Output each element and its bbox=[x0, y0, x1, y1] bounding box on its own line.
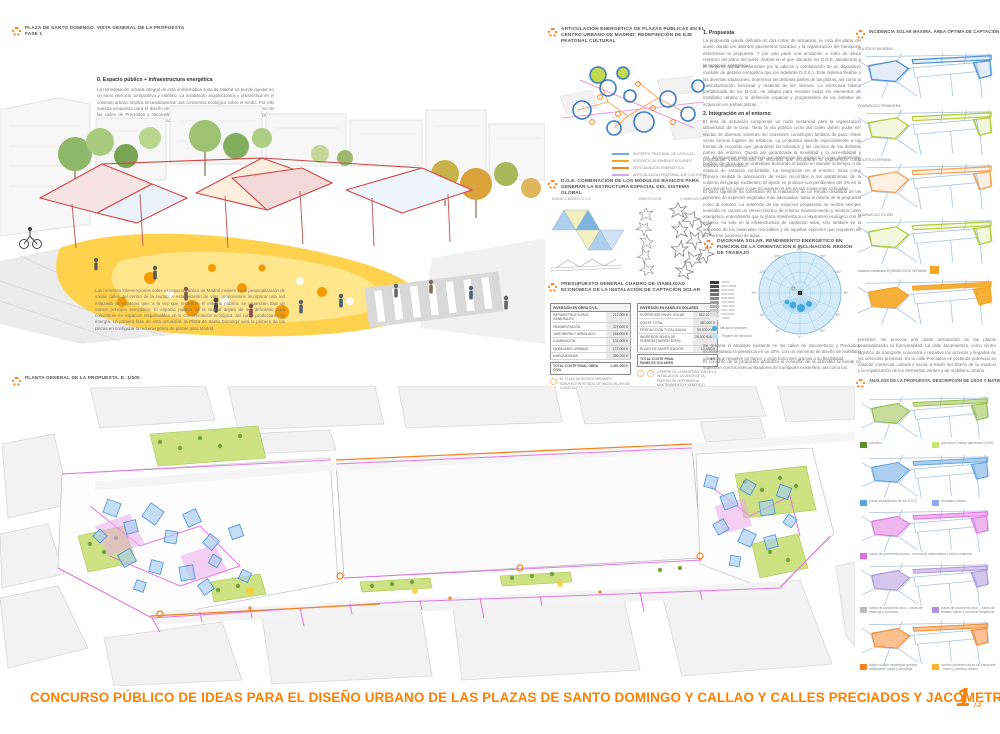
section-header-incidencia: INCIDENCIA SOLAR MÁXIMA. ÁREA ÓPTIMA DE … bbox=[856, 29, 996, 39]
analisis-legend-2: zonas implantación de los D.G.E. mobilia… bbox=[860, 499, 996, 506]
sun-icon bbox=[856, 30, 865, 39]
region-blob-icon bbox=[712, 334, 719, 339]
solar-polar-diagram: 180° 150° 120° 90° 60° 30° 0° -30° -60° … bbox=[748, 247, 852, 339]
integracion-p3: El paso siguiente ha consistido en la re… bbox=[703, 189, 861, 239]
section-header-presupuesto: PRESUPUESTO GENERAL CUADRO DE VIABILIDAD… bbox=[548, 282, 710, 294]
svg-text:-150°: -150° bbox=[774, 255, 782, 259]
sun-icon bbox=[12, 27, 21, 36]
svg-text:150°: 150° bbox=[819, 255, 826, 259]
sun-icon bbox=[548, 283, 557, 292]
svg-text:-90°: -90° bbox=[751, 291, 758, 295]
incidencia-map-invierno bbox=[858, 52, 996, 99]
svg-text:30°: 30° bbox=[820, 329, 826, 333]
incidencia-map-maxima bbox=[858, 277, 996, 327]
articulacion-legend: SOPORTE PEATONAL DE LA PLAZA SOPORTE DE … bbox=[612, 150, 707, 178]
incidencia-title: INCIDENCIA SOLAR MÁXIMA. ÁREA ÓPTIMA DE … bbox=[869, 29, 999, 35]
svg-text:180°: 180° bbox=[797, 247, 804, 251]
analisis-map-dge bbox=[858, 455, 996, 498]
svg-text:120°: 120° bbox=[835, 270, 842, 274]
solar-p2: El conjunto de la propuesta garantiza la… bbox=[703, 359, 861, 372]
section-header-articulacion: ARTICULACIÓN ENERGÉTICA DE PLAZAS PÚBLIC… bbox=[548, 27, 710, 46]
dge-col1-label: MÓDULO BÁSICO D.G.E bbox=[552, 197, 591, 201]
svg-text:-120°: -120° bbox=[758, 270, 766, 274]
network-diagram bbox=[552, 66, 712, 148]
table-header: INVERSIÓN EN PANELES SOLARES bbox=[637, 303, 718, 312]
sun-icon bbox=[12, 377, 21, 386]
sun-icon bbox=[856, 379, 865, 388]
master-plan bbox=[0, 386, 855, 686]
panel-dot-icon bbox=[712, 326, 717, 331]
propuesta-heading: 1. Propuesta bbox=[703, 30, 734, 36]
incidencia-map-primavera bbox=[858, 109, 996, 156]
map-label-primavera: EQUINOCCIO PRIMAVERA bbox=[858, 104, 901, 108]
legend-swatch bbox=[612, 160, 629, 162]
analisis-legend-5: tráfico rodado restringido garajes parti… bbox=[860, 663, 996, 672]
section-title: PLAZA DE SANTO DOMINGO. VISTA GENERAL DE… bbox=[25, 26, 184, 32]
svg-text:-30°: -30° bbox=[775, 329, 782, 333]
analisis-map-pavimento-duro bbox=[858, 563, 996, 606]
solar-scale-legend: 100% 95%-100% 90%-95% 85%-90% 80%-85% 75… bbox=[710, 280, 736, 320]
legend-swatch bbox=[612, 174, 629, 176]
presupuesto-title: PRESUPUESTO GENERAL CUADRO DE VIABILIDAD… bbox=[561, 282, 710, 294]
sun-icon bbox=[704, 240, 713, 249]
table-header: INVERSIÓN EN OBRA CIVIL bbox=[550, 303, 631, 312]
integracion-heading: 2. Integración en el entorno bbox=[703, 111, 771, 117]
section-header-planta: PLANTA GENERAL DE LA PROPUESTA. e: 1/500 bbox=[12, 376, 272, 386]
intro-heading: 0. Espacio público + Infraestructura ene… bbox=[97, 77, 277, 83]
analisis-map-trafico bbox=[858, 621, 996, 664]
orange-square-icon bbox=[930, 266, 939, 274]
svg-text:-60°: -60° bbox=[759, 313, 766, 317]
dge-col3-label: COMBINACIÓN bbox=[680, 197, 704, 201]
dge-title: D.G.E. COMBINACIÓN DE LOS MÓDULOS BÁSICO… bbox=[561, 179, 710, 198]
intro-paragraph-2: Las recientes intervenciones sobre el es… bbox=[95, 288, 285, 332]
sun-icon bbox=[548, 180, 557, 189]
map-label-verano: SOLSTICIO VERANO bbox=[858, 158, 891, 162]
page-number: 1 bbox=[956, 682, 970, 713]
map-label-maxima: máxima incidencia EQUINOCCIOS VERANO bbox=[858, 266, 939, 274]
analisis-title: ANÁLISIS DE LA PROPUESTA. DESCRIPCIÓN DE… bbox=[869, 378, 1000, 383]
incidencia-map-verano bbox=[858, 163, 996, 210]
legend-swatch bbox=[612, 153, 629, 155]
section-header-analisis: ANÁLISIS DE LA PROPUESTA. DESCRIPCIÓN DE… bbox=[856, 378, 998, 388]
svg-text:0°: 0° bbox=[798, 336, 802, 340]
sun-icon bbox=[637, 370, 644, 377]
articulacion-title: ARTICULACIÓN ENERGÉTICA DE PLAZAS PÚBLIC… bbox=[561, 27, 710, 46]
map-label-otono: EQUINOCCIO OTOÑO bbox=[858, 213, 893, 217]
sun-icon bbox=[550, 378, 557, 385]
sun-icon bbox=[548, 28, 557, 37]
integracion-p2: Así, distinguimos entre caminos que atra… bbox=[703, 155, 861, 193]
analisis-legend-3: zonas de pavimento sonoro - recorridos r… bbox=[860, 552, 990, 559]
sun-icon bbox=[647, 370, 654, 377]
page-total: /3 bbox=[974, 699, 982, 709]
map-label-invierno: SOLSTICIO INVIERNO bbox=[858, 47, 893, 51]
section-header-vista-general: PLAZA DE SANTO DOMINGO. VISTA GENERAL DE… bbox=[12, 26, 262, 38]
competition-title: CONCURSO PÚBLICO DE IDEAS PARA EL DISEÑO… bbox=[30, 690, 1000, 705]
planta-title: PLANTA GENERAL DE LA PROPUESTA. e: 1/500 bbox=[25, 376, 140, 382]
section-header-dge: D.G.E. COMBINACIÓN DE LOS MÓDULOS BÁSICO… bbox=[548, 179, 710, 198]
analisis-legend-1: arbolado pavimento blando ajardinado (30… bbox=[860, 441, 996, 448]
dge-module-diagram bbox=[548, 202, 716, 280]
incidencia-paragraph: previstos. Se provoca una doble articula… bbox=[858, 337, 996, 375]
legend-swatch bbox=[612, 167, 629, 169]
propuesta-p2: El conjunto queda conformado por la adic… bbox=[703, 64, 861, 108]
competition-board: PLAZA DE SANTO DOMINGO. VISTA GENERAL DE… bbox=[0, 0, 1000, 734]
section-title-fase: FASE 1 bbox=[25, 32, 184, 38]
incidencia-map-otono bbox=[858, 218, 996, 265]
analisis-legend-4: zonas de pavimento duro - zonas de estan… bbox=[860, 606, 996, 615]
obra-civil-table: INVERSIÓN EN OBRA CIVIL INFRAESTRUCTURAS… bbox=[550, 303, 631, 390]
analisis-map-pavimento-sonoro bbox=[858, 509, 996, 552]
dge-col2-label: ORIENTACIÓN bbox=[638, 197, 661, 201]
svg-text:90°: 90° bbox=[844, 291, 850, 295]
solar-marker-legend: situación paneles Región de afección bbox=[712, 324, 752, 340]
analisis-map-vegetacion bbox=[858, 396, 996, 439]
svg-text:60°: 60° bbox=[836, 313, 842, 317]
